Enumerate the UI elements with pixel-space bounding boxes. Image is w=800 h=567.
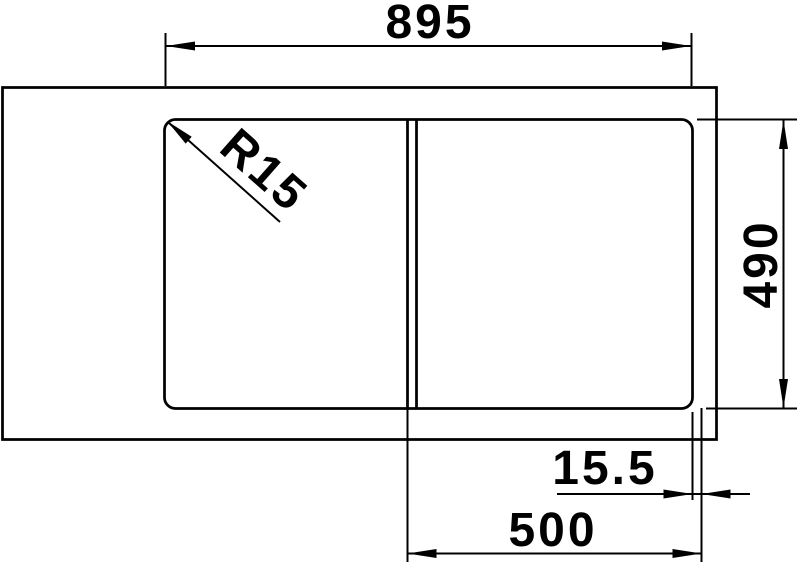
dimension-label-bowl-width: 500 [508,504,597,557]
arrowhead-down-icon [779,379,788,408]
arrowhead-left-icon [408,549,437,558]
dimension-label-depth: 490 [735,219,788,308]
arrowhead-corner-icon [167,121,192,144]
arrowhead-up-icon [779,120,788,149]
dimension-label-overall-width: 895 [385,0,474,49]
dimension-overall-width: 895 [166,0,692,86]
arrowhead-left-icon [702,490,731,499]
arrowhead-left-icon [166,42,195,51]
sink-technical-drawing: 895 R15 490 15.5 [0,0,800,567]
dimension-corner-radius: R15 [167,119,318,223]
sink-outline [3,88,717,440]
sink-outer-rim-rect [3,88,717,440]
arrowhead-right-icon [662,42,691,51]
dimension-label-divider-thickness: 15.5 [552,442,657,495]
drawing-svg: 895 R15 490 15.5 [0,0,800,567]
dimension-depth: 490 [697,120,797,409]
arrowhead-right-icon [673,549,702,558]
arrowhead-right-icon [664,490,693,499]
